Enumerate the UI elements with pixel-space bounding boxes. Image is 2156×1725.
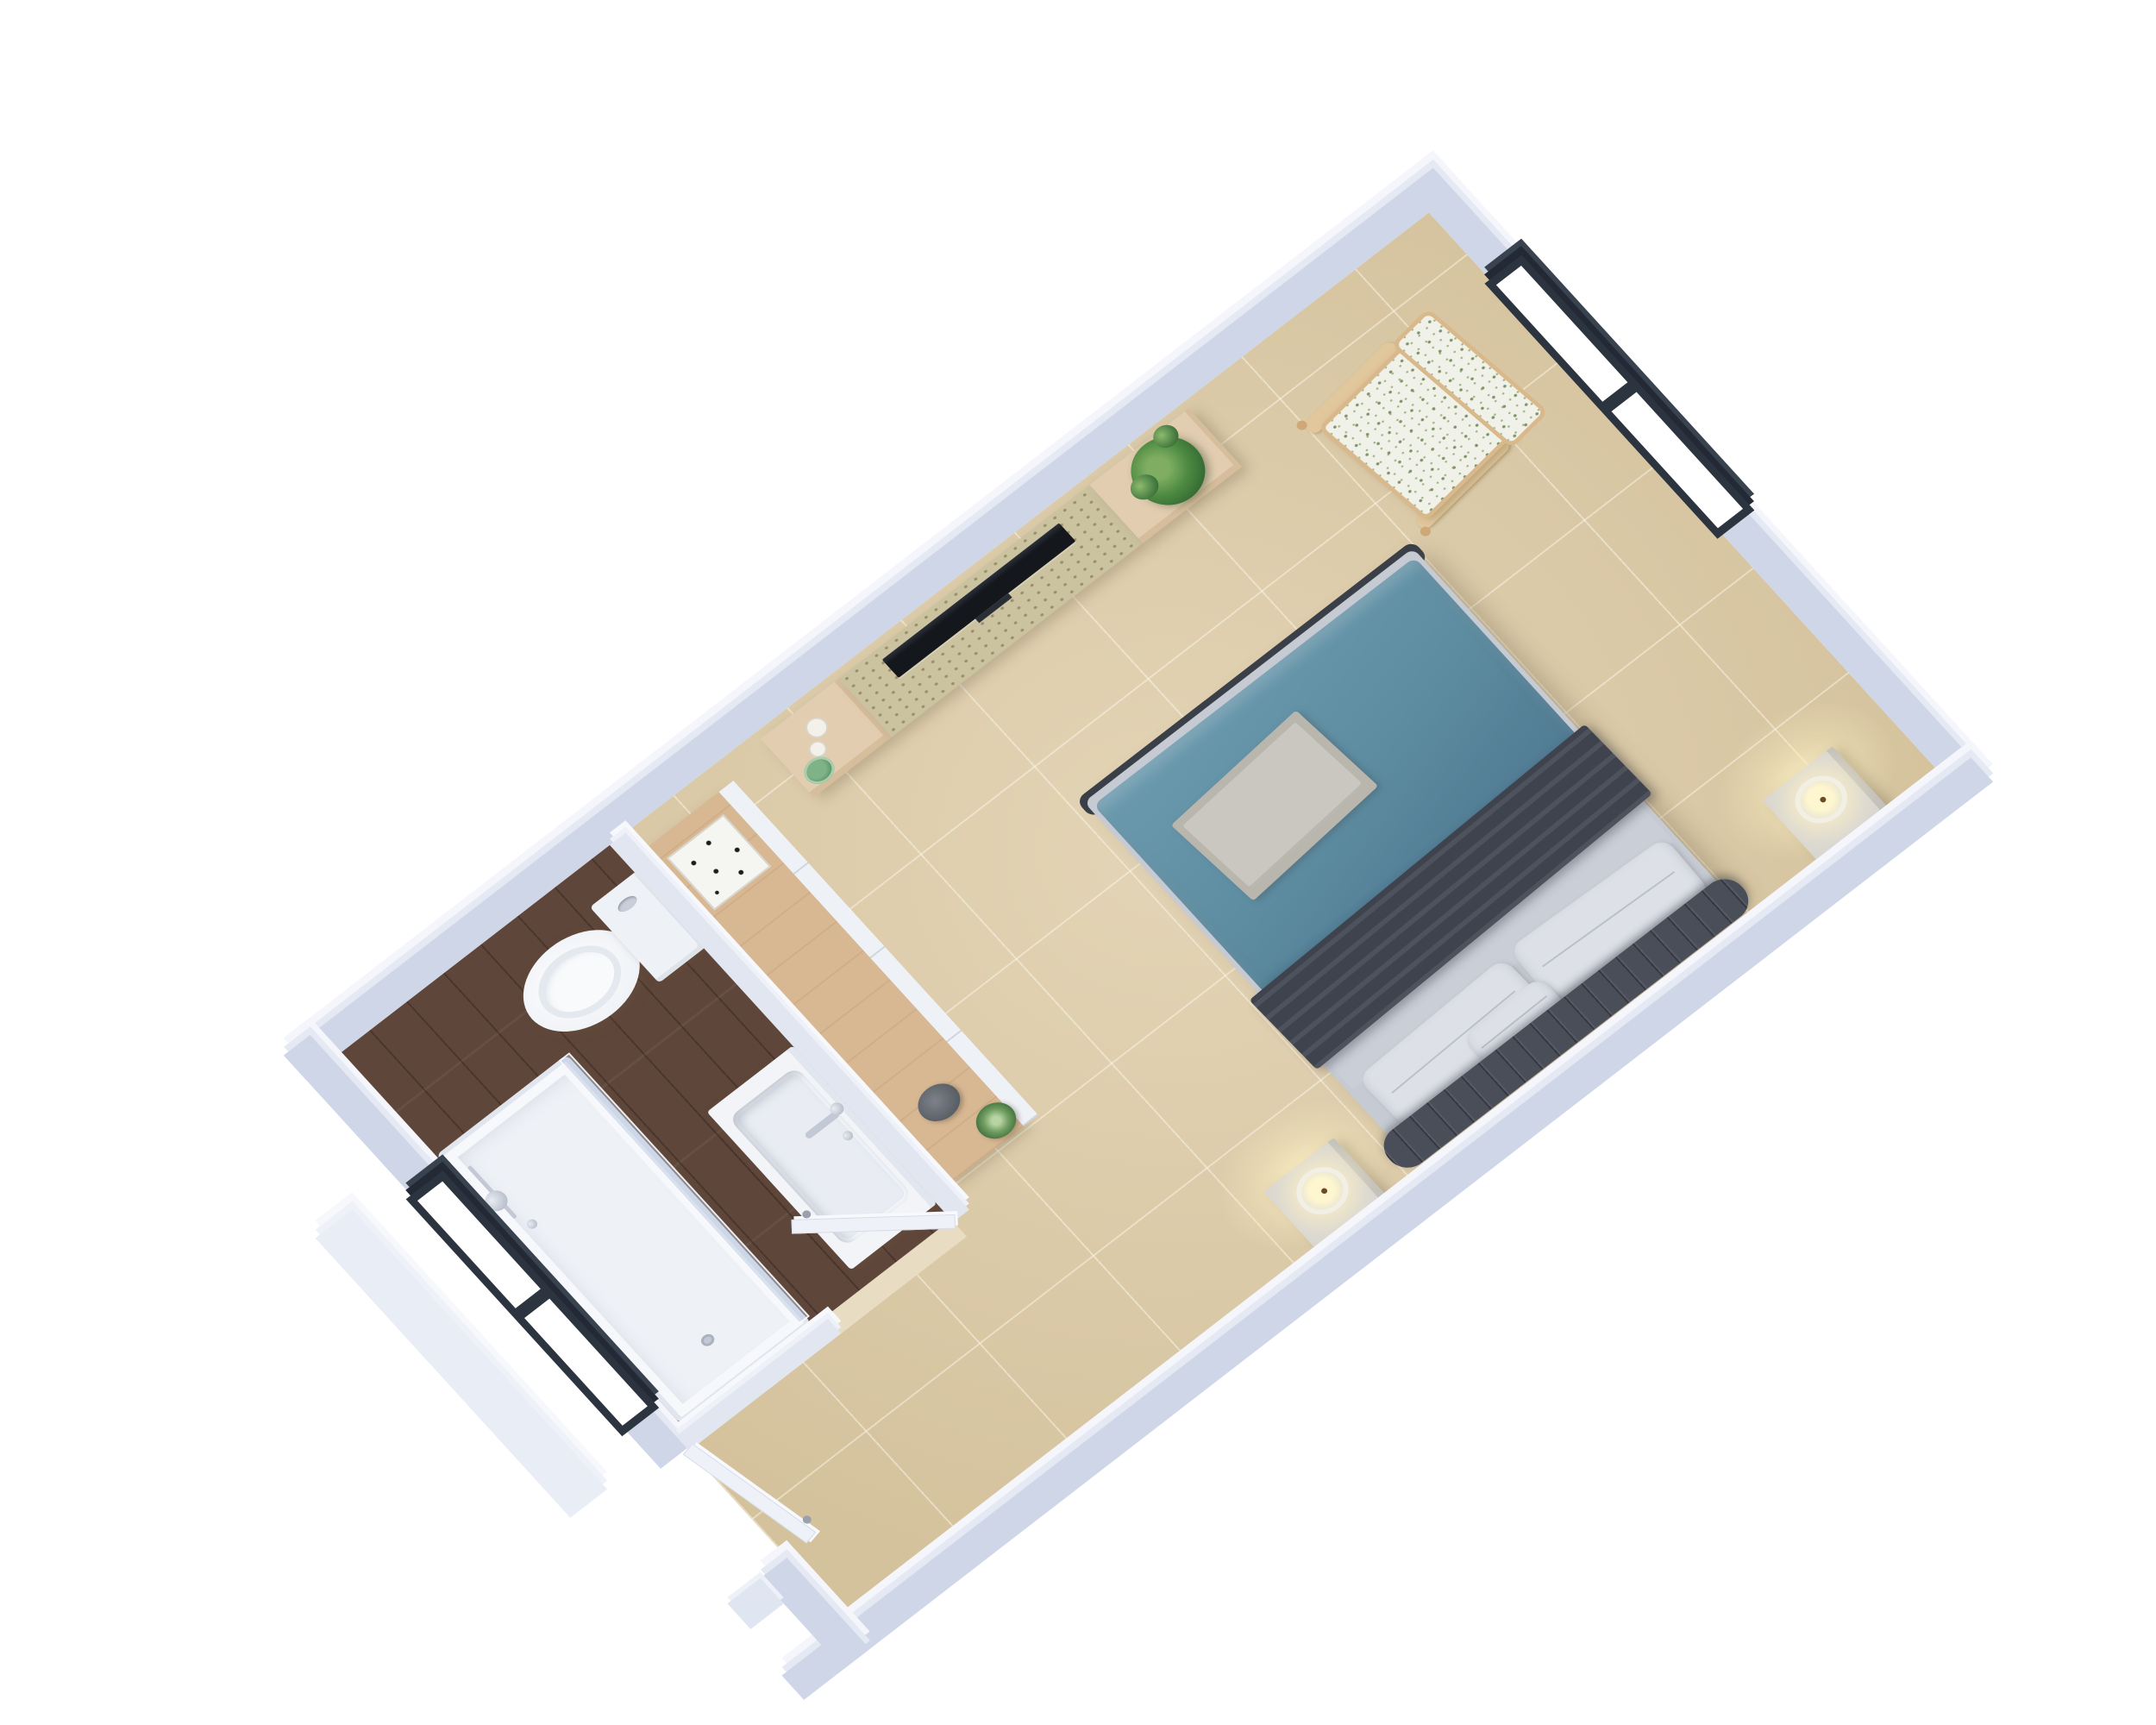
shower-drain-icon [699, 1332, 717, 1348]
candle-wick-icon [1818, 796, 1827, 804]
candle-wick-icon [1319, 1187, 1328, 1195]
floorplan-render [0, 0, 2156, 1725]
apartment-plan [284, 168, 1993, 1670]
toilet-flush-button [615, 893, 640, 914]
